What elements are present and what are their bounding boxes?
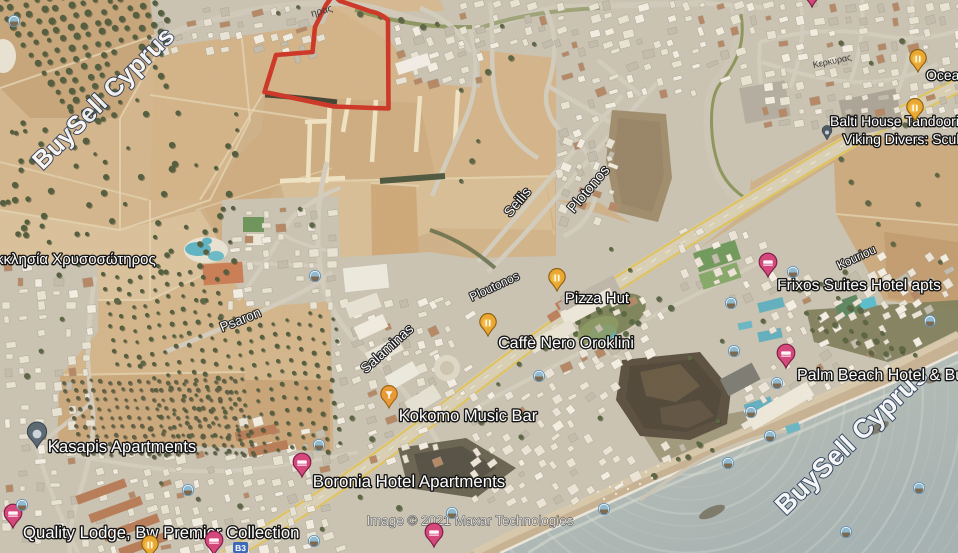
svg-text:Viking Divers: Scuba: Viking Divers: Scuba (843, 131, 958, 147)
svg-text:Kokomo Music Bar: Kokomo Music Bar (399, 407, 538, 425)
svg-text:B3: B3 (235, 543, 246, 553)
svg-text:Caffè Nero Oroklini: Caffè Nero Oroklini (498, 335, 634, 352)
svg-text:Image © 2021 Maxar Technologie: Image © 2021 Maxar Technologies (367, 513, 574, 528)
svg-text:Pizza Hut: Pizza Hut (565, 290, 630, 307)
svg-text:Kasapis Apartments: Kasapis Apartments (48, 437, 196, 456)
svg-text:Palm Beach Hotel & Bui: Palm Beach Hotel & Bui (797, 367, 958, 384)
svg-text:Ocean...: Ocean... (926, 67, 958, 83)
svg-text:Frixos Suites Hotel apts: Frixos Suites Hotel apts (777, 277, 941, 294)
svg-text:Boronia Hotel Apartments: Boronia Hotel Apartments (313, 472, 505, 491)
svg-text:Quality Lodge, Bw Premier Coll: Quality Lodge, Bw Premier Collection (23, 523, 299, 542)
svg-text:κκλησία Χρυσοσώτηρος: κκλησία Χρυσοσώτηρος (0, 251, 156, 268)
svg-text:Balti House Tandoori: Balti House Tandoori (830, 113, 958, 129)
